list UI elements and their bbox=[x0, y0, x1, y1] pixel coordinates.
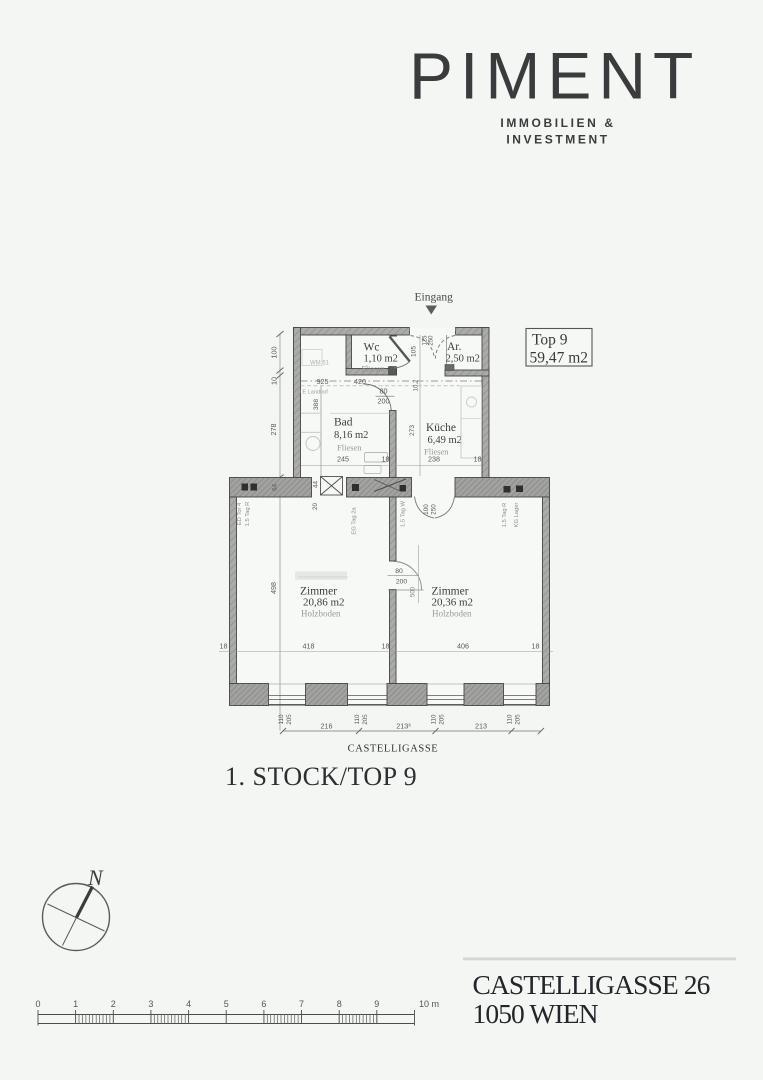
svg-text:18: 18 bbox=[382, 642, 390, 651]
svg-text:100: 100 bbox=[270, 347, 279, 359]
svg-text:2,50 m2: 2,50 m2 bbox=[446, 354, 480, 365]
svg-text:20,36 m2: 20,36 m2 bbox=[432, 597, 474, 609]
svg-text:10: 10 bbox=[270, 377, 279, 385]
svg-text:Küche: Küche bbox=[426, 422, 456, 434]
svg-text:18: 18 bbox=[220, 642, 228, 651]
svg-text:CASTELLIGASSE 26: CASTELLIGASSE 26 bbox=[473, 969, 710, 1000]
svg-text:1: 1 bbox=[73, 999, 78, 1009]
svg-text:110: 110 bbox=[431, 714, 438, 724]
svg-text:80: 80 bbox=[395, 568, 403, 575]
svg-text:925: 925 bbox=[317, 377, 329, 386]
svg-text:KG Lager: KG Lager bbox=[514, 503, 520, 528]
svg-text:Fliesen: Fliesen bbox=[362, 365, 385, 374]
svg-text:238: 238 bbox=[428, 455, 440, 464]
svg-text:245: 245 bbox=[337, 455, 349, 464]
svg-text:1. STOCK/TOP 9: 1. STOCK/TOP 9 bbox=[225, 762, 417, 791]
svg-text:100: 100 bbox=[423, 504, 430, 515]
svg-text:200: 200 bbox=[396, 579, 408, 586]
svg-text:1,10 m2: 1,10 m2 bbox=[364, 354, 398, 365]
svg-text:498: 498 bbox=[269, 582, 278, 594]
svg-text:IMMOBILIEN &: IMMOBILIEN & bbox=[500, 116, 615, 130]
svg-text:205: 205 bbox=[515, 714, 522, 725]
svg-text:8,16 m2: 8,16 m2 bbox=[334, 430, 368, 441]
svg-text:18: 18 bbox=[382, 455, 390, 464]
svg-text:Ar.: Ar. bbox=[447, 341, 462, 353]
svg-text:1.5 Tag W: 1.5 Tag W bbox=[401, 500, 407, 527]
svg-text:406: 406 bbox=[457, 642, 469, 651]
svg-text:5: 5 bbox=[224, 999, 229, 1009]
svg-text:8: 8 bbox=[337, 999, 342, 1009]
svg-text:20,86 m2: 20,86 m2 bbox=[303, 597, 345, 609]
svg-text:10 m: 10 m bbox=[419, 999, 439, 1009]
svg-text:1.5 Tag R: 1.5 Tag R bbox=[502, 503, 508, 528]
svg-text:N: N bbox=[87, 865, 104, 890]
svg-text:250: 250 bbox=[431, 504, 438, 515]
svg-text:80: 80 bbox=[380, 387, 388, 396]
svg-text:6: 6 bbox=[261, 999, 266, 1009]
svg-text:18: 18 bbox=[532, 642, 540, 651]
svg-text:105: 105 bbox=[411, 346, 418, 357]
svg-text:278: 278 bbox=[269, 424, 278, 436]
svg-text:0: 0 bbox=[35, 999, 40, 1009]
svg-text:205: 205 bbox=[439, 714, 446, 725]
svg-text:250: 250 bbox=[429, 335, 435, 346]
svg-text:20: 20 bbox=[312, 503, 319, 511]
svg-text:1.5 Tag R: 1.5 Tag R bbox=[245, 502, 251, 527]
svg-text:1050 WIEN: 1050 WIEN bbox=[473, 998, 599, 1029]
svg-text:200: 200 bbox=[378, 397, 390, 406]
svg-text:205: 205 bbox=[362, 714, 369, 725]
svg-text:PIMENT: PIMENT bbox=[409, 39, 700, 113]
svg-text:64: 64 bbox=[272, 484, 279, 492]
svg-text:EG Tag 2a: EG Tag 2a bbox=[352, 507, 358, 535]
svg-text:500: 500 bbox=[411, 586, 417, 597]
svg-text:213³: 213³ bbox=[396, 722, 411, 731]
svg-text:388: 388 bbox=[313, 399, 320, 410]
svg-text:CASTELLIGASSE: CASTELLIGASSE bbox=[348, 744, 439, 755]
svg-text:6,49 m2: 6,49 m2 bbox=[428, 435, 462, 446]
svg-text:10,2: 10,2 bbox=[414, 379, 420, 391]
svg-text:7: 7 bbox=[299, 999, 304, 1009]
svg-text:4: 4 bbox=[186, 999, 191, 1009]
svg-text:110: 110 bbox=[507, 714, 514, 724]
svg-text:59,47 m2: 59,47 m2 bbox=[530, 350, 589, 367]
svg-text:44: 44 bbox=[313, 481, 320, 489]
svg-text:110: 110 bbox=[278, 714, 285, 724]
svg-text:ED Tor 4: ED Tor 4 bbox=[237, 502, 243, 525]
svg-text:Holzboden: Holzboden bbox=[432, 609, 472, 619]
svg-text:Wc: Wc bbox=[364, 342, 380, 354]
svg-text:INVESTMENT: INVESTMENT bbox=[506, 133, 609, 147]
svg-text:420: 420 bbox=[354, 377, 366, 386]
svg-text:216: 216 bbox=[321, 722, 333, 731]
svg-text:110: 110 bbox=[354, 714, 361, 724]
svg-text:Holzboden: Holzboden bbox=[301, 609, 341, 619]
svg-text:9: 9 bbox=[374, 999, 379, 1009]
svg-text:3: 3 bbox=[148, 999, 153, 1009]
svg-text:418: 418 bbox=[303, 642, 315, 651]
svg-text:2: 2 bbox=[111, 999, 116, 1009]
svg-text:Top 9: Top 9 bbox=[532, 332, 568, 349]
svg-text:213: 213 bbox=[475, 722, 487, 731]
svg-text:Bad: Bad bbox=[334, 417, 353, 429]
svg-text:Eingang: Eingang bbox=[415, 292, 454, 304]
svg-text:273: 273 bbox=[409, 425, 416, 436]
svg-text:1,0 E Landhof: 1,0 E Landhof bbox=[293, 390, 328, 396]
svg-text:Fliesen: Fliesen bbox=[337, 443, 362, 453]
svg-text:WM 51: WM 51 bbox=[310, 361, 330, 367]
svg-text:18: 18 bbox=[474, 455, 482, 464]
svg-text:205: 205 bbox=[286, 714, 293, 725]
